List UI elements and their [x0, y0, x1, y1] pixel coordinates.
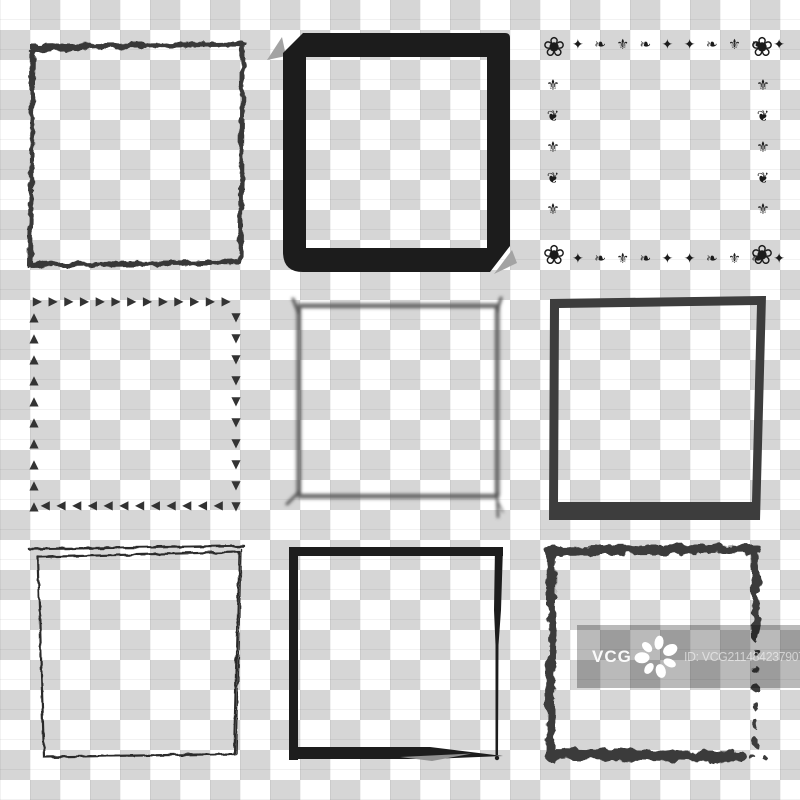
frame-blurred-brush — [287, 298, 503, 517]
ornament-top-edge: ✦ ❧ ⚜ ❧ ✦ ✦ ❧ ⚜ ❧ ✦ — [572, 32, 744, 62]
ornament-corner-icon: ❀ — [536, 30, 572, 66]
ornament-bottom-edge: ✦ ❧ ⚜ ❧ ✦ ✦ ❧ ⚜ ❧ ✦ — [572, 246, 744, 276]
triangle-right-edge: ▼▼▼▼▼▼▼▼▼▼ — [229, 310, 243, 498]
transparency-checkerboard-background: ❀ ❀ ❀ ❀ ✦ ❧ ⚜ ❧ ✦ ✦ ❧ ⚜ ❧ ✦ ✦ ❧ ⚜ ❧ ✦ ✦ … — [0, 0, 800, 800]
frame-bold-brush — [289, 547, 503, 761]
watermark-brand-text: VCG — [592, 647, 632, 667]
ornament-right-edge: ⚜❦⚜❦⚜ — [746, 68, 780, 238]
watermark-band: VCG ID: VCG211484237907 — [577, 625, 800, 688]
triangle-top-edge: ▶▶▶▶▶▶▶▶▶▶▶▶▶ — [27, 295, 243, 309]
ornament-corner-icon: ❀ — [536, 238, 572, 274]
watermark-id-text: ID: VCG211484237907 — [684, 649, 800, 664]
frame-grunge-thin — [30, 44, 244, 265]
frame-thick-marker — [267, 33, 517, 274]
ornament-left-edge: ⚜❦⚜❦⚜ — [536, 68, 570, 238]
frame-solid-skewed — [549, 296, 766, 520]
frame-triangle-dashed: ▶▶▶▶▶▶▶▶▶▶▶▶▶ ▼▼▼▼▼▼▼▼▼▼ ◀◀◀◀◀◀◀◀◀◀◀◀ ▲▲… — [27, 295, 243, 513]
frame-pencil-sketch — [29, 546, 244, 757]
triangle-bottom-edge: ◀◀◀◀◀◀◀◀◀◀◀◀ — [27, 499, 243, 513]
triangle-left-edge: ▲▲▲▲▲▲▲▲▲▲ — [27, 310, 41, 498]
frame-ornamental-floral: ❀ ❀ ❀ ❀ ✦ ❧ ⚜ ❧ ✦ ✦ ❧ ⚜ ❧ ✦ ✦ ❧ ⚜ ❧ ✦ ✦ … — [538, 34, 778, 272]
flower-asterisk-icon — [634, 634, 680, 680]
